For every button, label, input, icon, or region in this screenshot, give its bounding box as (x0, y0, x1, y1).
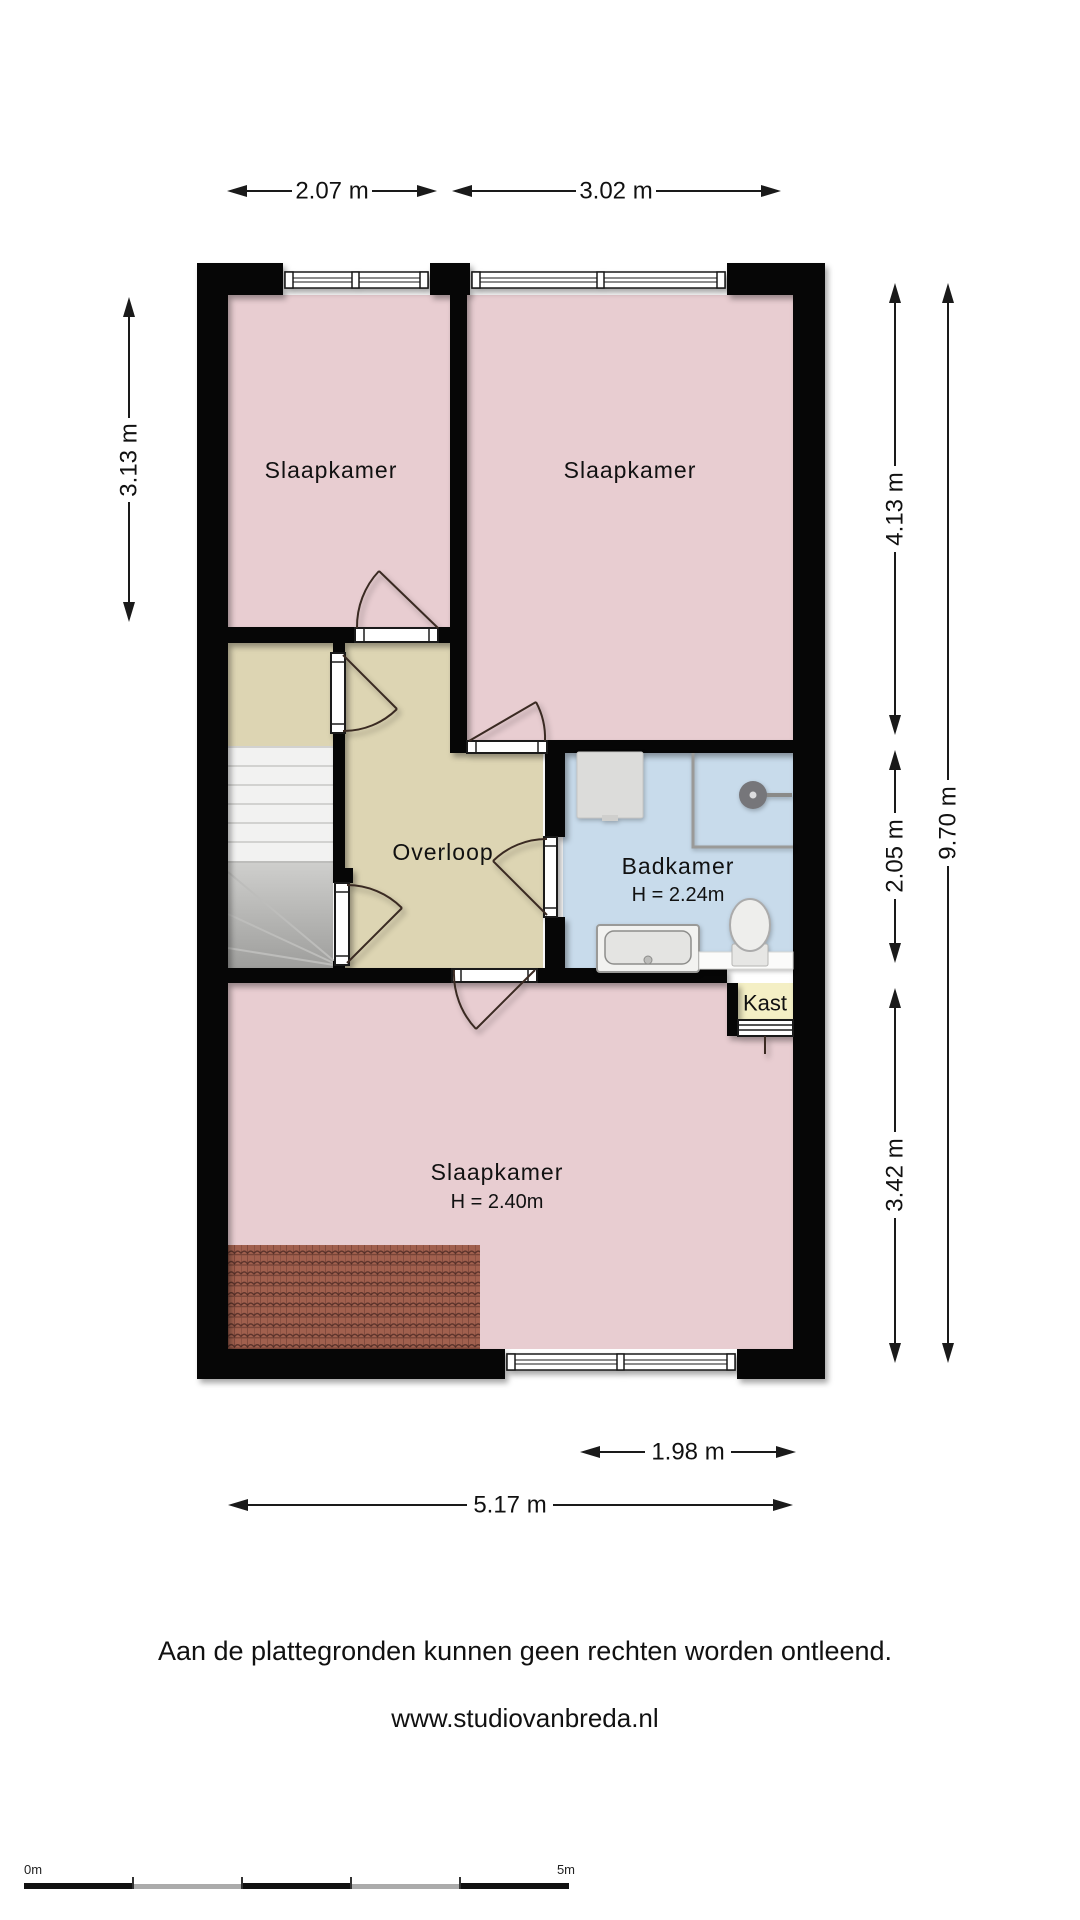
label-slaapkamer-right: Slaapkamer (564, 457, 697, 483)
dim-bottom-window-label: 1.98 m (651, 1439, 724, 1466)
wall-slaapkamer-left-south (228, 627, 355, 643)
footer: Aan de plattegronden kunnen geen rechten… (158, 1636, 892, 1733)
label-slaapkamer-left: Slaapkamer (265, 457, 398, 483)
washbasin-cabinet (577, 752, 643, 821)
dim-bottom-window: 1.98 m (580, 1439, 796, 1466)
dim-top-left: 2.07 m (227, 178, 437, 205)
dim-top-left-label: 2.07 m (295, 178, 368, 205)
label-slaapkamer-bottom-height: H = 2.40m (451, 1191, 544, 1213)
floorplan-drawing: Slaapkamer Slaapkamer Overloop Badkamer … (0, 0, 1080, 1920)
roof-tiles-area (228, 1245, 480, 1349)
wall-top-left-corner (197, 263, 283, 295)
window-bottom (507, 1354, 735, 1370)
wall-badkamer-west-b (545, 917, 565, 968)
dim-top-right: 3.02 m (452, 178, 781, 205)
floorplan-page: Slaapkamer Slaapkamer Overloop Badkamer … (0, 0, 1080, 1920)
wall-badkamer-west-a (545, 753, 565, 837)
wall-left (197, 263, 228, 1379)
dim-right-total-label: 9.70 m (935, 786, 962, 859)
scale-bar-segments (24, 1883, 569, 1889)
staircase (228, 747, 340, 968)
wall-stairs-a (333, 643, 345, 653)
label-slaapkamer-bottom: Slaapkamer (431, 1159, 564, 1185)
bathtub (597, 925, 699, 972)
scale-end-label: 5m (557, 1862, 575, 1877)
wall-stairs-b (333, 733, 345, 883)
dim-bottom-total-label: 5.17 m (473, 1492, 546, 1519)
wall-slaapkamer-right-south-b (547, 740, 793, 753)
wall-bottom-right-corner (737, 1349, 825, 1379)
dim-top-right-label: 3.02 m (579, 178, 652, 205)
window-top-left (285, 272, 428, 288)
wall-kast-west (727, 983, 738, 1036)
wall-hall-south-a (197, 968, 452, 983)
dim-bottom-total: 5.17 m (228, 1492, 793, 1519)
dim-right-top: 4.13 m (882, 283, 909, 735)
scale-bar: 0m 5m (24, 1862, 575, 1889)
stair-landing (228, 643, 333, 747)
dim-right-top-label: 4.13 m (882, 472, 909, 545)
wall-between-bedrooms (450, 295, 467, 753)
label-overloop: Overloop (392, 839, 493, 865)
dim-right-total: 9.70 m (935, 283, 962, 1363)
room-slaapkamer-right (467, 295, 793, 740)
wall-bottom-left (197, 1349, 505, 1379)
label-badkamer-height: H = 2.24m (632, 884, 725, 906)
wall-stub (438, 627, 452, 643)
dim-left: 3.13 m (116, 297, 143, 622)
website-text: www.studiovanbreda.nl (390, 1703, 658, 1733)
label-kast: Kast (743, 991, 787, 1016)
scale-start-label: 0m (24, 1862, 42, 1877)
dim-right-middle: 2.05 m (882, 750, 909, 963)
toilet (730, 899, 770, 966)
label-badkamer: Badkamer (622, 853, 735, 879)
wall-top-right-corner (727, 263, 825, 295)
dim-right-bottom: 3.42 m (882, 988, 909, 1363)
dim-right-bottom-label: 3.42 m (882, 1138, 909, 1211)
dim-right-middle-label: 2.05 m (882, 819, 909, 892)
window-top-right (472, 272, 725, 288)
disclaimer-text: Aan de plattegronden kunnen geen rechten… (158, 1636, 892, 1666)
dim-left-label: 3.13 m (116, 423, 143, 496)
wall-stairs-jog (345, 868, 353, 883)
wall-slaapkamer-right-south-a (450, 740, 467, 753)
wall-top-pier (430, 263, 470, 295)
wall-right (793, 263, 825, 1379)
